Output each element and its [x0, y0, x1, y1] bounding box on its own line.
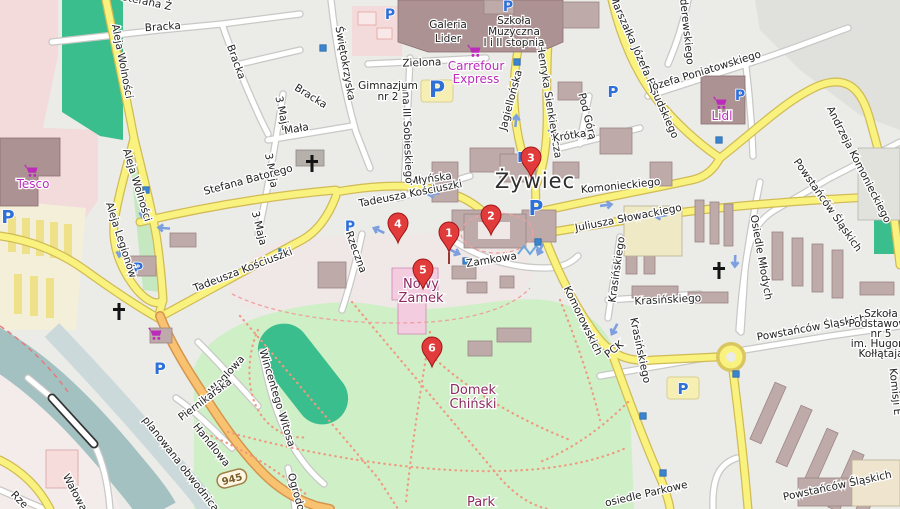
shop-label: Lidl	[712, 109, 733, 123]
shop-label: Tesco	[16, 177, 50, 191]
parking-icon: P	[1, 207, 14, 228]
street-label: Zielona	[402, 56, 441, 69]
parking-icon: P	[503, 0, 513, 15]
tourism-label: Domek	[450, 383, 497, 398]
parking-icon: P	[385, 7, 395, 23]
tourism-label: Zamek	[398, 291, 444, 306]
poi-label: Lider	[435, 33, 462, 45]
parking-icon: P	[735, 88, 745, 104]
poi-label: nr 2	[378, 91, 399, 103]
marker-number: 4	[394, 218, 402, 231]
svg-text:P: P	[1, 207, 14, 228]
shop-label: Express	[453, 72, 500, 86]
tourism-label: Chiński	[449, 397, 496, 412]
svg-text:P: P	[429, 78, 445, 103]
town-label: Żywiec	[495, 168, 575, 193]
bus-stop-icon	[535, 239, 541, 245]
bus-stop-icon	[640, 413, 646, 419]
bus-stop-icon	[320, 45, 326, 51]
marker-number: 6	[428, 342, 436, 355]
svg-text:P: P	[154, 359, 166, 378]
bus-stop-icon	[514, 59, 520, 65]
svg-text:P: P	[735, 88, 745, 104]
bus-stop-icon	[660, 470, 666, 476]
marker-number: 2	[487, 210, 495, 223]
marker-number: 1	[445, 227, 453, 240]
marker-number: 3	[527, 152, 535, 165]
svg-text:P: P	[529, 196, 544, 220]
svg-text:P: P	[608, 83, 619, 101]
map-image: PPPPPPPPPPPP BrackaBrackaBracka3 MajaMał…	[0, 0, 900, 509]
svg-text:P: P	[678, 380, 689, 398]
map-canvas[interactable]: PPPPPPPPPPPP BrackaBrackaBracka3 MajaMał…	[0, 0, 900, 509]
svg-text:P: P	[385, 7, 395, 23]
shop-label: Carrefour	[448, 59, 505, 73]
parking-icon: P	[667, 377, 699, 399]
bus-stop-icon	[733, 371, 739, 377]
poi-label: Galeria	[429, 19, 467, 31]
tourism-label: Park	[467, 495, 496, 509]
poi-label: I i II stopnia	[484, 37, 545, 49]
marker-number: 5	[419, 264, 427, 277]
parking-icon: P	[421, 78, 453, 103]
parking-icon: P	[529, 196, 544, 220]
svg-text:P: P	[503, 0, 513, 15]
parking-icon: P	[154, 359, 166, 378]
roundabout	[716, 342, 746, 372]
street-label: Bracka	[144, 20, 181, 34]
poi-label: Kołłątaja	[858, 348, 900, 360]
parking-icon: P	[608, 83, 619, 101]
bus-stop-icon	[716, 137, 722, 143]
